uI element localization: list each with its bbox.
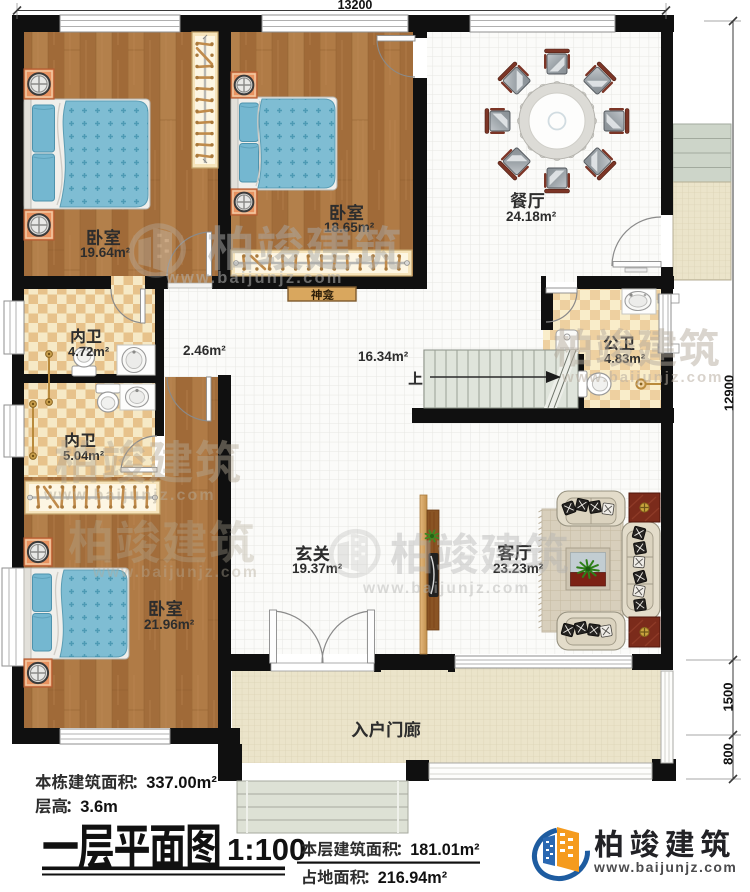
svg-text:4.72m²: 4.72m² [68, 344, 110, 359]
svg-text:1500: 1500 [721, 683, 736, 712]
svg-text:www.baijunjz.com: www.baijunjz.com [362, 580, 530, 597]
svg-text:www.baijunjz.com: www.baijunjz.com [92, 564, 259, 581]
svg-text:1:100: 1:100 [227, 832, 306, 867]
svg-text:21.96m²: 21.96m² [144, 617, 195, 632]
svg-text:16.34m²: 16.34m² [358, 349, 409, 364]
svg-text:24.18m²: 24.18m² [506, 209, 557, 224]
svg-text:13200: 13200 [338, 0, 373, 12]
svg-text:3.6m: 3.6m [80, 798, 118, 816]
svg-text:181.01m²: 181.01m² [410, 841, 480, 859]
svg-text:12900: 12900 [722, 375, 737, 411]
svg-text:www.baijunjz.com: www.baijunjz.com [593, 859, 737, 875]
svg-text:216.94m²: 216.94m² [378, 869, 448, 887]
svg-text:www.baijunjz.com: www.baijunjz.com [43, 487, 216, 504]
svg-text:2.46m²: 2.46m² [183, 343, 226, 358]
svg-text:19.64m²: 19.64m² [80, 245, 131, 260]
svg-text:337.00m²: 337.00m² [146, 774, 217, 792]
svg-text:800: 800 [721, 743, 736, 765]
svg-text:www.baijunjz.com: www.baijunjz.com [165, 269, 344, 287]
svg-text:www.baijunjz.com: www.baijunjz.com [561, 369, 723, 386]
